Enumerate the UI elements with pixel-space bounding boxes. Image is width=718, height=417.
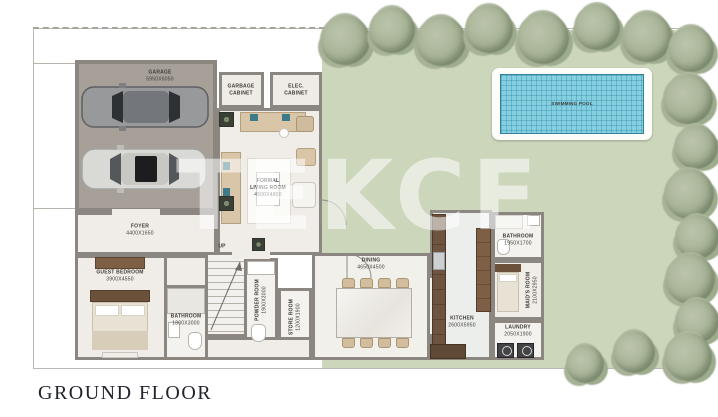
kitchen-label: KITCHEN 2600X5950 [448, 315, 475, 329]
plant-icon [219, 112, 234, 127]
tree-icon [663, 74, 713, 124]
room-name: LAUNDRY [505, 324, 531, 330]
armchair [296, 116, 314, 132]
side-table [279, 128, 289, 138]
tree-icon [574, 4, 620, 50]
room-dims: 4650X4500 [357, 264, 384, 271]
room-name: BATHROOM [503, 233, 534, 239]
room-name: BATHROOM [171, 313, 202, 319]
kitchen-sink [433, 252, 445, 270]
stairs-direction: UP [218, 244, 225, 250]
room-name: CABINET [228, 90, 255, 97]
room-dims: 1900X3000 [261, 279, 268, 321]
door-gap [232, 252, 270, 259]
dining-chair [378, 338, 391, 348]
room-name: FOYER [131, 223, 149, 229]
room-name: LIVING ROOM [250, 185, 286, 192]
sink [527, 215, 540, 226]
room-name: DINING [362, 257, 381, 263]
pool-name: SWIMMING POOL [551, 101, 592, 106]
garage-label: GARAGE 5950X6050 [146, 69, 173, 83]
room-dims: 3900X4550 [96, 276, 143, 283]
up-label: UP [218, 244, 225, 251]
plant-icon [219, 196, 234, 211]
tree-icon [675, 215, 718, 259]
room-name: ELEC. [288, 83, 304, 89]
pillow [250, 114, 258, 121]
foyer-label: FOYER 4400X1650 [126, 223, 153, 237]
armchair [292, 182, 316, 208]
pillow [95, 305, 119, 316]
staircase [205, 252, 247, 337]
maid-bathroom-label: BATHROOM 1950X1700 [503, 233, 534, 247]
floorplan-page: SWIMMING POOL [0, 0, 718, 417]
pillow [223, 162, 230, 170]
pillow [223, 188, 230, 196]
formal-living-label: FORMAL LIVING ROOM 4500X4800 [250, 178, 286, 198]
room-name: MAID'S ROOM [525, 272, 531, 308]
toilet [251, 324, 266, 342]
dining-label: DINING 4650X4500 [357, 257, 384, 271]
room-dims: 2050X1900 [504, 331, 531, 338]
tree-icon [613, 331, 655, 373]
page-title: GROUND FLOOR [38, 381, 212, 405]
room-dims: 1800X3000 [171, 320, 202, 327]
washing-machine [497, 343, 514, 358]
tree-icon [664, 169, 714, 219]
plot-boundary-dashed-line [33, 27, 325, 29]
dining-table [336, 288, 412, 338]
pool-label: SWIMMING POOL [551, 101, 592, 107]
tree-icon [665, 254, 715, 304]
shower [167, 288, 205, 314]
garbage-cabinet-label: GARBAGE CABINET [228, 83, 255, 97]
driveway-line [33, 63, 75, 64]
store-room-label: STORE ROOM 1200X1900 [288, 299, 302, 335]
tree-icon [517, 12, 569, 64]
guest-bathroom-label: BATHROOM 1800X3000 [171, 313, 202, 327]
room-name: GUEST BEDROOM [96, 269, 143, 275]
bathtub [495, 215, 523, 229]
tree-icon [664, 333, 712, 381]
car-top-view [79, 80, 211, 134]
pillow [499, 274, 517, 282]
tree-icon [622, 12, 672, 62]
washing-machine [517, 343, 534, 358]
tree-icon [369, 7, 415, 53]
room-name: FORMAL [257, 178, 280, 184]
dresser [95, 257, 145, 269]
guest-bedroom-label: GUEST BEDROOM 3900X4550 [96, 269, 143, 283]
room-guest-hall [164, 255, 208, 288]
room-dims: 4500X4800 [250, 191, 286, 198]
door-gap [112, 209, 160, 216]
toilet [188, 332, 202, 350]
tree-icon [674, 125, 718, 169]
vanity [247, 261, 275, 275]
room-dims: 4400X1650 [126, 230, 153, 237]
room-name: GARBAGE [228, 83, 255, 89]
room-dims: 5950X6050 [146, 76, 173, 83]
dining-chair [396, 278, 409, 288]
tree-icon [566, 345, 604, 383]
bed-headboard [90, 290, 150, 302]
dining-chair [342, 278, 355, 288]
room-name: GARAGE [148, 69, 171, 75]
tree-icon [465, 5, 513, 53]
room-name: KITCHEN [450, 315, 474, 321]
dining-chair [396, 338, 409, 348]
room-name: POWDER ROOM [254, 279, 260, 321]
dining-chair [342, 338, 355, 348]
room-name: STORE ROOM [288, 299, 294, 335]
bench [102, 352, 138, 358]
tree-icon [416, 16, 466, 66]
tree-icon [668, 26, 714, 72]
bed-headboard [495, 264, 521, 272]
tree-icon [320, 15, 370, 65]
driveway-line [33, 208, 75, 209]
pillow [282, 114, 290, 121]
room-dims: 1950X1700 [503, 240, 534, 247]
dining-chair [360, 278, 373, 288]
elec-cabinet-label: ELEC. CABINET [284, 83, 308, 97]
plant-icon [252, 238, 265, 251]
dining-chair [378, 278, 391, 288]
blanket [92, 331, 148, 350]
dining-chair [360, 338, 373, 348]
room-dims: 2100X2950 [532, 272, 539, 308]
kitchen-counter [432, 214, 446, 346]
laundry-label: LAUNDRY 2050X1900 [504, 324, 531, 338]
car-top-view [79, 142, 209, 196]
kitchen-cabinet [430, 344, 466, 359]
room-dims: 2600X5950 [448, 322, 475, 329]
maids-room-label: MAID'S ROOM 2100X2950 [525, 272, 539, 308]
armchair [296, 148, 316, 166]
kitchen-cabinet [476, 228, 491, 312]
room-dims: 1200X1900 [295, 299, 302, 335]
pillow [121, 305, 145, 316]
room-name: CABINET [284, 90, 308, 97]
powder-room-label: POWDER ROOM 1900X3000 [254, 279, 268, 321]
